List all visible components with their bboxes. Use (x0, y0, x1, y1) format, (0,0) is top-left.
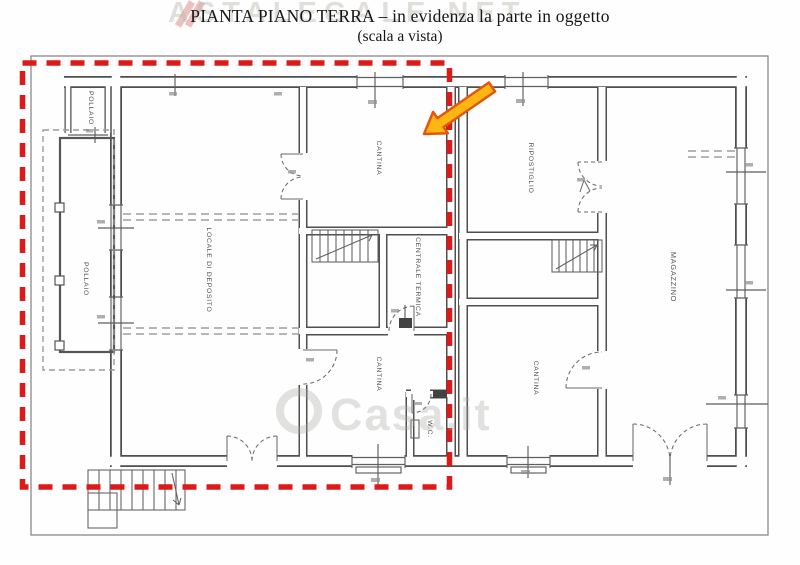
pollaio-annex (43, 130, 114, 370)
room-label-ripostiglio: RIPOSTIGLIO (527, 142, 534, 193)
room-label-cantina-right: CANTINA (532, 361, 539, 396)
stairs-right (552, 240, 602, 272)
floor-plan-page: ASTALEGALE.NET Casa.it PIANTA PIANO TERR… (0, 0, 800, 565)
room-label-pollaio-left: POLLAIO (82, 262, 89, 296)
room-label-cantina-top: CANTINA (375, 141, 382, 176)
beam-lines (123, 151, 737, 334)
walls-dividing (451, 87, 602, 462)
room-label-magazzino: MAGAZZINO (669, 252, 678, 302)
room-label-wc: W.C. (426, 420, 433, 438)
room-label-cantina-mid: CANTINA (375, 357, 382, 392)
floor-plan-svg: POLLAIO POLLAIO LOCALE DI DEPOSITO CANTI… (0, 0, 800, 565)
room-label-locale-deposito: LOCALE DI DEPOSITO (205, 228, 212, 313)
stairs-exterior (88, 470, 185, 528)
room-label-pollaio-top: POLLAIO (87, 91, 94, 125)
room-label-centrale-termica: CENTRALE TERMICA (414, 237, 421, 317)
